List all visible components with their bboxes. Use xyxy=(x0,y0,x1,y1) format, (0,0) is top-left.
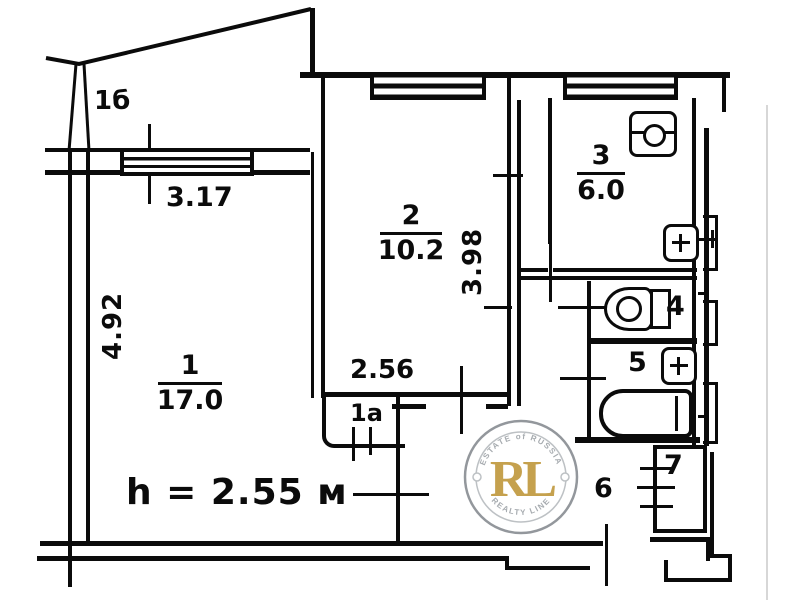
floor-plan-canvas: 1б 3.17 4.92 1 17.0 2 10.2 3.98 2.56 1а … xyxy=(0,0,800,600)
watermark-right-dot xyxy=(561,473,569,481)
balcony-pole-left-line xyxy=(69,64,76,151)
watermark-initials: RL xyxy=(490,451,556,508)
balcony-roof-lines xyxy=(0,0,800,600)
watermark-left-dot xyxy=(473,473,481,481)
realty-watermark-stamp: ESTATE of RUSSIA REALTY LINE RL xyxy=(462,418,580,536)
balcony-pole-right-line xyxy=(84,64,89,151)
roof-diagonal-line xyxy=(46,9,311,64)
